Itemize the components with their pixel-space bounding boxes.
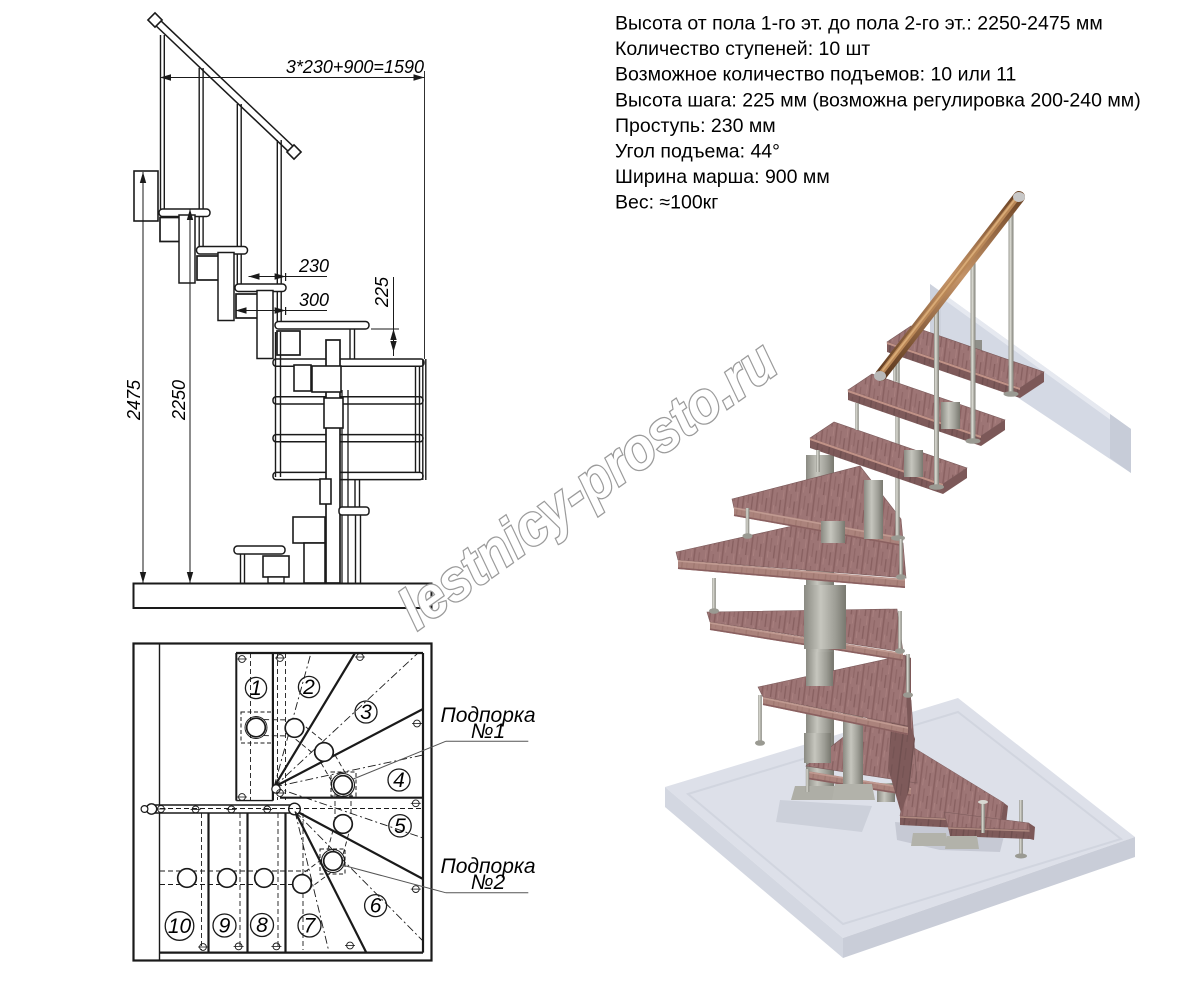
- svg-text:2475: 2475: [124, 379, 144, 421]
- svg-text:Количество ступеней: 10 шт: Количество ступеней: 10 шт: [615, 38, 870, 60]
- svg-text:3: 3: [360, 701, 372, 724]
- svg-text:4: 4: [393, 769, 405, 792]
- svg-text:9: 9: [219, 915, 231, 938]
- svg-text:Высота шага: 225 мм (возможна: Высота шага: 225 мм (возможна регулировк…: [615, 89, 1141, 111]
- svg-text:Вес: ≈100кг: Вес: ≈100кг: [615, 192, 718, 214]
- svg-text:Ширина марша: 900 мм: Ширина марша: 900 мм: [615, 166, 830, 188]
- svg-text:10: 10: [168, 915, 192, 938]
- svg-text:№1: №1: [471, 720, 505, 743]
- svg-text:5: 5: [394, 815, 406, 838]
- svg-text:230: 230: [298, 256, 329, 276]
- svg-text:225: 225: [372, 276, 392, 308]
- svg-text:№2: №2: [471, 871, 506, 894]
- svg-text:Угол подъема: 44°: Угол подъема: 44°: [615, 141, 780, 163]
- svg-text:2: 2: [302, 676, 315, 699]
- svg-text:8: 8: [256, 914, 268, 937]
- svg-text:7: 7: [304, 915, 317, 938]
- svg-text:1: 1: [250, 677, 262, 700]
- svg-text:3*230+900=1590: 3*230+900=1590: [286, 57, 424, 77]
- svg-text:300: 300: [299, 290, 329, 310]
- svg-text:Проступь: 230 мм: Проступь: 230 мм: [615, 115, 776, 137]
- svg-text:Возможное количество подъемов:: Возможное количество подъемов: 10 или 11: [615, 64, 1016, 86]
- svg-text:Высота от пола 1-го эт. до пол: Высота от пола 1-го эт. до пола 2-го эт.…: [615, 13, 1103, 35]
- svg-text:6: 6: [370, 895, 382, 918]
- svg-text:2250: 2250: [169, 380, 189, 421]
